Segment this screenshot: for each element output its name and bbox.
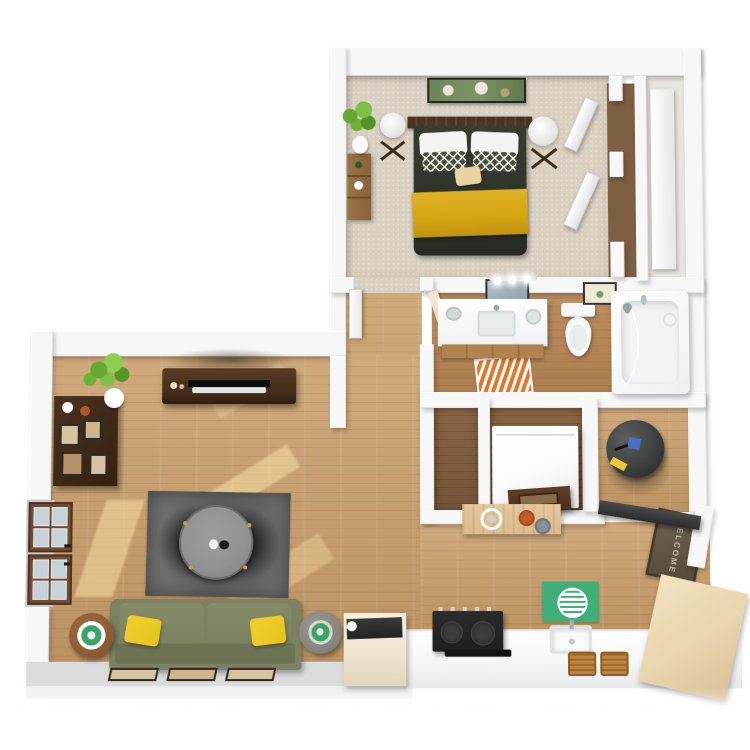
nightstand-lamp-right [528,117,558,146]
tv-console [162,368,296,404]
vanity-counter [438,299,548,346]
bowl-graphic-icon [557,588,587,618]
bedroom-door [349,289,362,338]
wall-picture-frame [166,668,217,681]
vanity-light-bulb [508,276,516,284]
washer-top-seam [496,434,574,436]
table-decor-black [219,540,229,549]
heater-pipe [614,444,628,452]
bedroom-plant [336,99,382,157]
pillow-tan [454,166,482,187]
throw-blanket [412,189,529,238]
living-plant [78,348,137,410]
burner [441,621,463,643]
wall-picture-frame [225,668,276,681]
sofa-pillow-yellow-right [249,615,286,646]
door-handle [64,544,70,547]
white-vase [354,181,363,190]
sink-faucet [493,305,499,311]
wall-picture-frame [108,668,159,681]
kitchen-sink [550,625,593,653]
cart-bowl [347,621,357,631]
sofa-seat [115,643,295,663]
heater-valve [628,437,642,450]
sofa-pillow-yellow-left [124,615,162,647]
tripod-table-right [528,146,560,171]
apartment-floor-plan: WELCOME [0,8,750,750]
floor-plan-image: WELCOME [0,0,750,750]
patio-door-lower [27,554,72,605]
side-table-cup [87,631,95,639]
vanity-light-bulb [493,277,501,285]
door-glass-pane [51,581,67,600]
tub-faucet [623,303,632,312]
shelf-photo-frame [61,452,83,476]
door-glass-pane [33,507,49,526]
bedroom-wall-art [427,78,526,103]
tub-drain [663,313,677,327]
wardrobe-sliding-door [650,89,676,269]
plant-foliage [336,99,381,142]
closet-wall-top [609,76,623,101]
shelf-photo-frame [89,454,107,476]
table-foot [183,521,187,525]
water-heater [606,420,665,478]
door-glass-pane [32,581,48,600]
sink-drain [569,638,575,644]
stove-knobs [439,607,497,611]
vanity-sink [478,311,516,337]
bottom-fade [0,688,750,750]
side-table-right [299,611,341,654]
kitchen-cart [344,613,407,686]
closet-divider-1 [478,398,491,512]
shelf-photo-frame [84,420,102,440]
left-outer-wall-top [29,331,53,501]
bedroom-bookcase [347,154,371,221]
door-glass-pane [33,528,49,547]
cake-dome [487,515,495,523]
tripod-table-left [378,138,408,163]
tv-soundbar [192,387,266,393]
counter-basket [600,652,629,676]
console-table [462,504,561,534]
bathtub [611,291,690,394]
console-decor [179,384,184,389]
door-glass-pane [51,507,67,526]
kitchen-mat [542,582,599,623]
white-mug [62,402,73,413]
soap-dish [446,307,462,321]
door-handle [64,562,70,565]
table-foot [247,523,251,527]
bookcase-shelf-line [347,197,371,199]
sink-faucet [570,620,574,629]
bedroom-doorway-threshold [354,277,424,293]
bedroom-top-wall [331,47,702,76]
shower-head [641,295,647,305]
stove [432,611,503,652]
vanity-light-bulb [523,275,531,283]
hallway-living-wall-stub [330,356,346,428]
counter-basket [568,652,596,676]
closet-wall-mid [609,152,623,177]
wardrobe-corridor-wall [634,76,648,281]
door-glass-pane [33,559,49,578]
sofa [109,599,301,670]
closet-wall-bottom [610,242,624,277]
table-foot [243,565,247,569]
bathroom-left-wall-top [420,277,434,291]
table-decor-white [209,539,218,549]
closet-divider-2 [582,398,599,512]
cake-plate [480,508,502,530]
bathroom-bottom-wall [420,392,706,408]
nightstand-lamp-left [380,113,406,138]
tv-screen [188,380,270,387]
bathroom-left-wall-bottom [420,344,434,522]
coffee-table [179,505,254,580]
cup-orange [519,510,535,526]
oven-handle [445,650,512,657]
patio-door-upper [28,502,73,552]
table-foot [189,565,193,569]
shelf-photo-frame [60,424,80,446]
side-table-cup [316,628,323,635]
wine-bottle [355,161,362,168]
wall-art-canvas [429,80,524,101]
side-table-left [69,613,114,658]
bed [412,117,529,256]
bookcase-shelf-line [347,175,371,177]
linen-closet-floor [432,398,480,512]
cup-gray [535,518,551,534]
plant-foliage [78,348,136,396]
vanity-cabinet [442,344,544,358]
console-decor [170,382,177,389]
burner [471,621,495,645]
toiletry-jar [525,309,541,325]
